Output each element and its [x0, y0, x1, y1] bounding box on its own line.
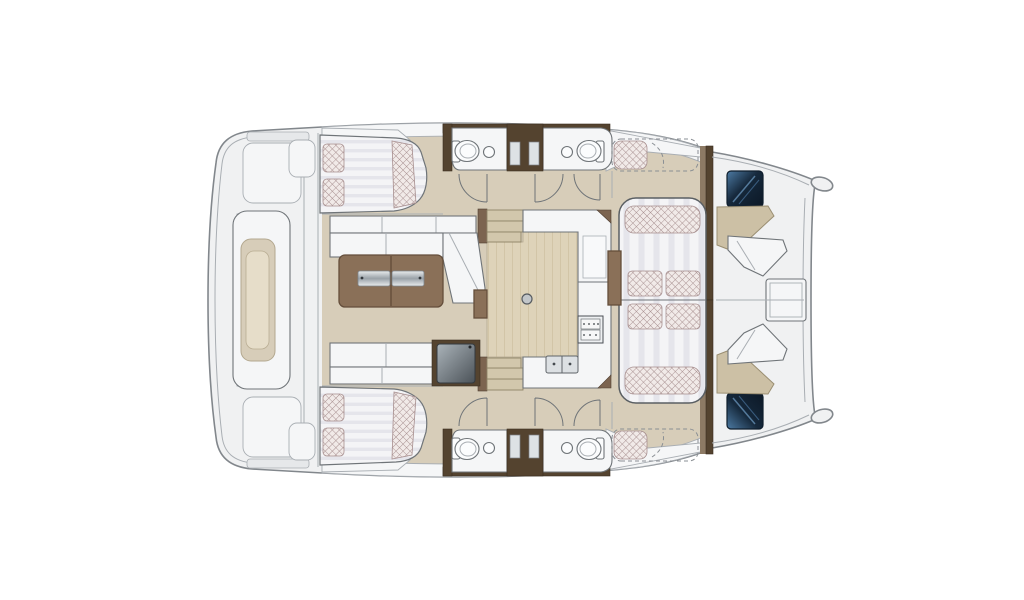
berth-blanket-band	[392, 141, 416, 208]
sofa-backrest	[330, 216, 476, 233]
companionway-stairs	[478, 209, 523, 243]
floor-deck-plate	[522, 294, 532, 304]
lounge-bolster	[625, 206, 700, 233]
fridge-top	[437, 344, 475, 383]
toilet	[577, 141, 604, 163]
stair-side-trim	[478, 209, 487, 243]
berth-pillow	[323, 144, 344, 172]
sink-drain	[569, 363, 572, 366]
sofa-side-table	[474, 290, 487, 318]
stern-lounge-pod	[233, 211, 290, 389]
forward-bulkhead-strip	[706, 146, 713, 300]
toilet	[452, 141, 479, 163]
insert-latch-dot	[419, 277, 422, 280]
shower-door-panel	[529, 142, 539, 165]
stair-step	[487, 232, 521, 242]
pod-table	[246, 251, 269, 349]
catamaran-floorplan	[0, 0, 1024, 600]
lounge-cushion	[628, 271, 662, 296]
forward-seat-cushion	[614, 141, 647, 169]
lounge-cushion	[666, 304, 700, 329]
berth-pillow	[323, 179, 344, 206]
salon-bench	[330, 340, 480, 386]
galley-sink	[546, 356, 578, 373]
galley-wood-floor	[487, 232, 578, 357]
fridge-latch	[469, 346, 472, 349]
wc-sink	[562, 147, 573, 158]
deck-locker-panel	[289, 140, 315, 177]
wc-left-wall	[443, 124, 452, 171]
stair-step	[487, 210, 523, 221]
lounge-side-table	[608, 251, 621, 305]
sink-drain	[553, 363, 556, 366]
double-berth	[320, 135, 427, 213]
bow-deck-hatch	[727, 171, 763, 207]
floorplan-canvas	[0, 0, 1024, 600]
lounge-cushion	[628, 304, 662, 329]
lounge-cushion	[666, 271, 700, 296]
dinette-lounge	[608, 198, 706, 403]
stair-step	[487, 221, 523, 232]
insert-latch-dot	[361, 277, 364, 280]
wc-compartments	[443, 124, 612, 171]
counter-inset	[583, 236, 606, 278]
shower-door-panel	[510, 142, 520, 165]
lounge-bolster	[625, 367, 700, 394]
wc-sink	[484, 147, 495, 158]
stove	[578, 316, 603, 343]
coffee-table	[339, 255, 443, 307]
